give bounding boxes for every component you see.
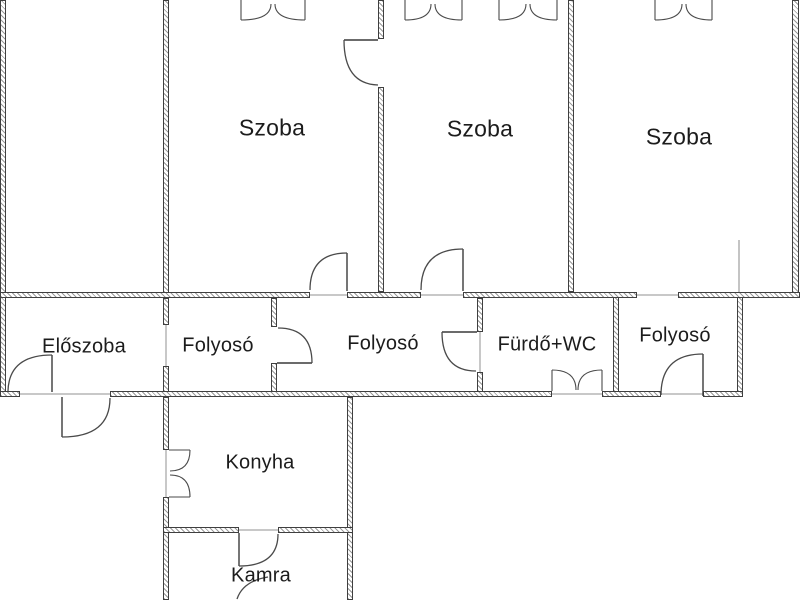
window-szoba1	[241, 0, 305, 20]
door-window-symbols	[0, 0, 800, 600]
door-entrance-inner	[8, 355, 52, 392]
door-folyoso3-exterior	[661, 354, 703, 396]
door-szoba1-folyoso	[310, 253, 347, 291]
floor-plan: Szoba Szoba Szoba Előszoba Folyosó Folyo…	[0, 0, 800, 600]
door-entrance-outer	[62, 397, 110, 437]
door-folyoso2-furdo	[442, 332, 477, 371]
window-szoba2-right	[499, 0, 557, 20]
window-szoba2-left	[405, 0, 462, 20]
room-label-folyoso-3: Folyosó	[639, 325, 710, 348]
room-label-furdo-wc: Fürdő+WC	[498, 334, 597, 357]
door-szoba2-folyoso	[421, 249, 463, 291]
door-szoba1-szoba2	[344, 40, 378, 85]
door-openings	[20, 295, 703, 530]
door-konyha-kamra	[239, 533, 278, 566]
room-label-szoba-2: Szoba	[447, 116, 513, 143]
room-label-szoba-1: Szoba	[239, 115, 305, 142]
room-label-folyoso-2: Folyosó	[347, 333, 418, 356]
window-konyha	[169, 450, 190, 497]
door-folyoso1-folyoso2	[277, 328, 312, 363]
room-label-folyoso-1: Folyosó	[182, 335, 253, 358]
room-label-konyha: Konyha	[225, 452, 294, 475]
window-furdo	[552, 370, 602, 391]
room-label-kamra: Kamra	[231, 565, 291, 588]
room-label-eloszoba: Előszoba	[42, 336, 126, 359]
window-szoba3	[655, 0, 712, 20]
room-label-szoba-3: Szoba	[646, 124, 712, 151]
